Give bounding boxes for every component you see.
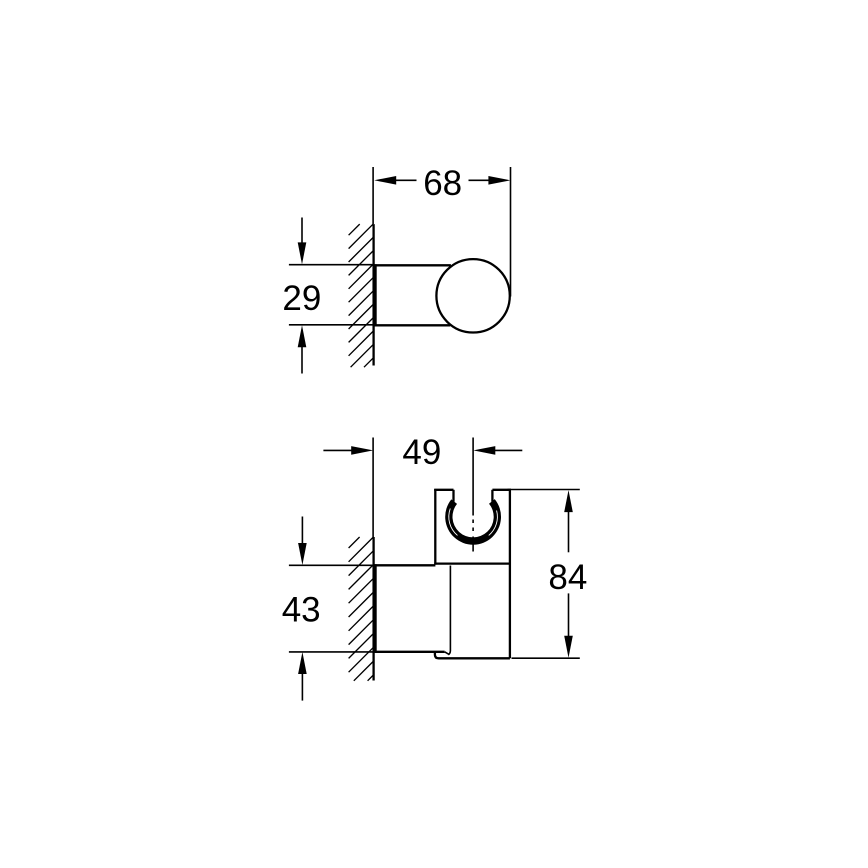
svg-text:84: 84 <box>548 558 587 597</box>
svg-text:49: 49 <box>402 433 441 472</box>
svg-text:43: 43 <box>282 591 321 630</box>
svg-text:68: 68 <box>423 164 462 203</box>
svg-text:29: 29 <box>282 279 321 318</box>
